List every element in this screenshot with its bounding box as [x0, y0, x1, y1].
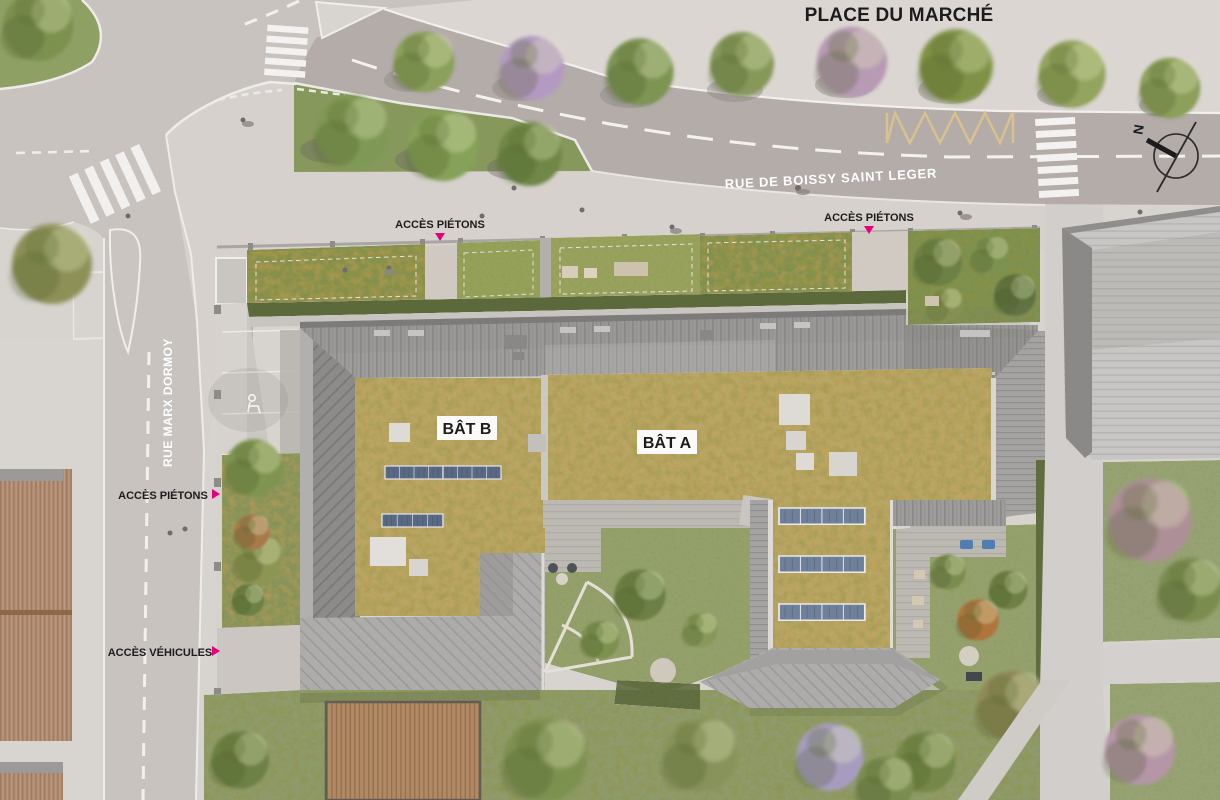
svg-text:BÂT B: BÂT B: [443, 419, 492, 438]
svg-text:ACCÈS PIÉTONS: ACCÈS PIÉTONS: [824, 211, 914, 224]
svg-text:BÂT A: BÂT A: [643, 433, 692, 452]
svg-text:ACCÈS PIÉTONS: ACCÈS PIÉTONS: [118, 489, 208, 502]
svg-text:RUE MARX DORMOY: RUE MARX DORMOY: [161, 338, 175, 467]
svg-text:ACCÈS PIÉTONS: ACCÈS PIÉTONS: [395, 218, 485, 231]
svg-text:ACCÈS VÉHICULES: ACCÈS VÉHICULES: [108, 646, 213, 659]
svg-text:PLACE DU MARCHÉ: PLACE DU MARCHÉ: [805, 4, 994, 26]
